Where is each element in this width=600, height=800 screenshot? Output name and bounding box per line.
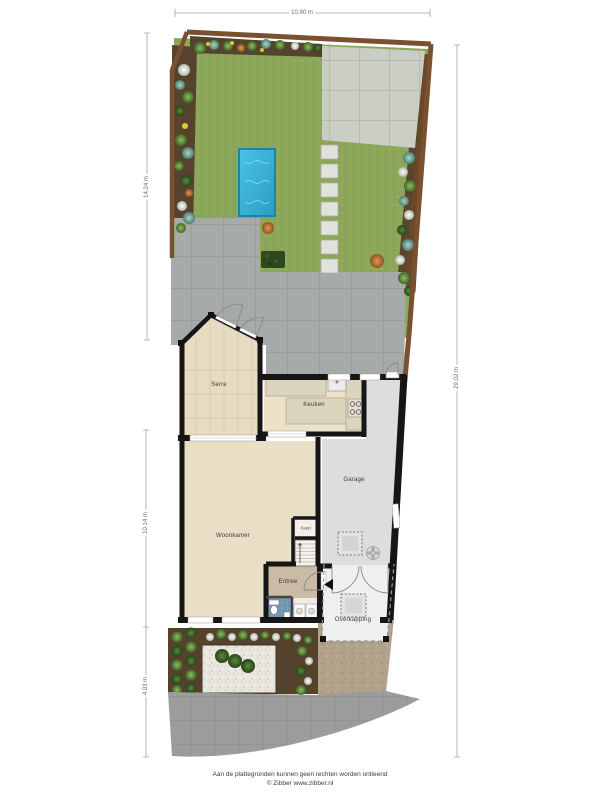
dimension-house-left: 10.14 m: [143, 510, 149, 536]
footer-disclaimer: Aan de plattegronden kunnen geen rechten…: [0, 771, 600, 778]
site-plan-graphic: [0, 0, 600, 800]
dimension-total-right: 29.02 m: [454, 365, 460, 391]
stepping-stones: [321, 145, 338, 273]
room-label-overkapping: Overkapping: [335, 617, 371, 623]
floorplan-page: 10.80 m 14.24 m 10.14 m 4.93 m 29.02 m S…: [0, 0, 600, 800]
footer-credit: © Zibber www.zibber.nl: [0, 780, 600, 787]
room-label-kast: Kast: [301, 526, 311, 531]
pool: [238, 148, 276, 217]
room-label-entree: Entree: [279, 579, 298, 585]
dimension-garden-left: 14.24 m: [144, 174, 150, 200]
room-label-garage: Garage: [343, 477, 364, 483]
fan-icon: [367, 547, 380, 560]
room-label-serre: Serre: [211, 382, 227, 388]
toilet-room: [267, 598, 291, 618]
dimension-front-left: 4.93 m: [143, 675, 149, 697]
sidewalk: [168, 691, 420, 757]
dimension-top: 10.80 m: [289, 10, 315, 16]
room-label-woonkamer: Woonkamer: [216, 533, 250, 539]
stairs: [295, 540, 318, 566]
room-label-keuken: Keuken: [303, 402, 325, 408]
